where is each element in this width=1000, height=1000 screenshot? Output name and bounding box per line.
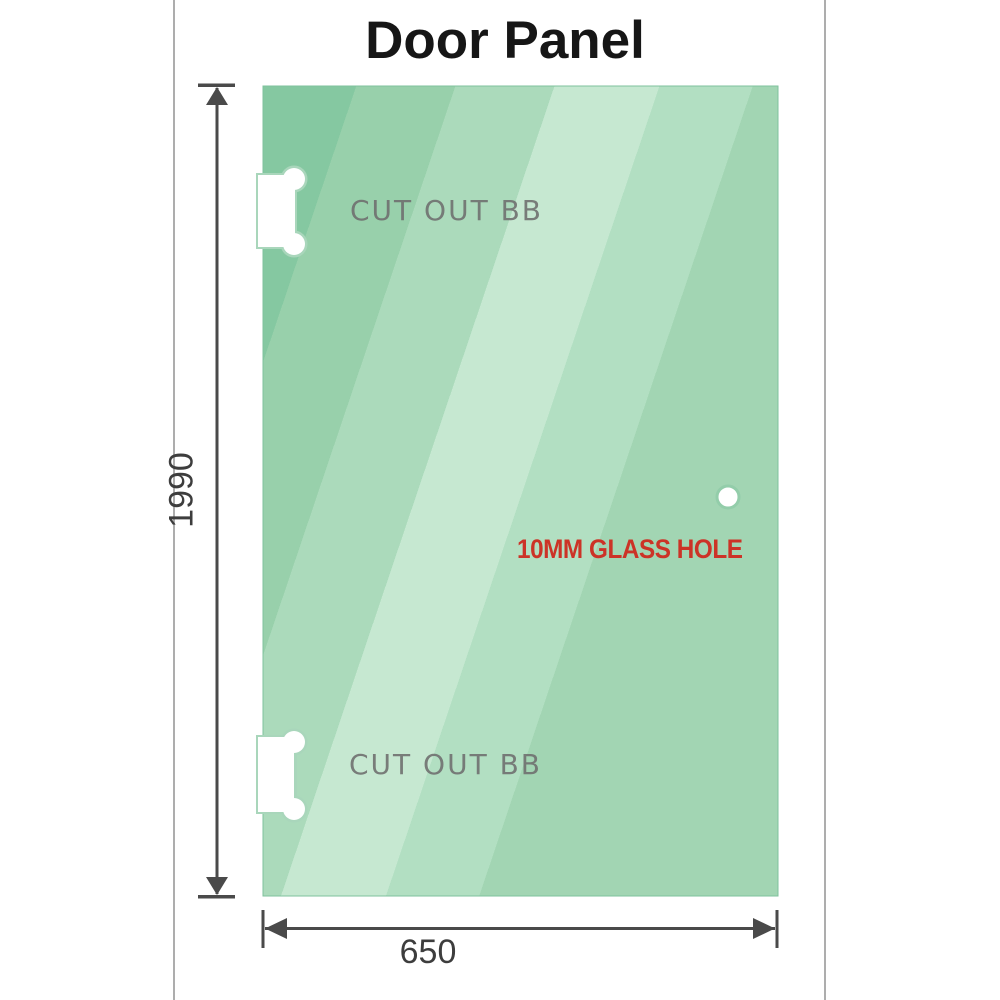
height-dim-top-cap: [198, 84, 235, 88]
width-dim-right-tick: [776, 910, 779, 948]
height-dimension-value: 1990: [163, 452, 202, 528]
width-dim-line: [265, 927, 775, 930]
door-panel-diagram: [0, 0, 1000, 1000]
width-dim-arrow-left: [265, 918, 287, 939]
height-dim-line: [216, 88, 219, 894]
height-dim-arrow-down: [206, 877, 228, 895]
height-dim-arrow-up: [206, 87, 228, 105]
height-dimension: [198, 84, 235, 899]
cutout-bottom-label: CUT OUT BB: [349, 748, 542, 781]
width-dim-left-tick: [262, 910, 265, 948]
width-dimension-value: 650: [400, 933, 457, 972]
height-dim-bottom-cap: [198, 895, 235, 899]
drawing-canvas: Door Panel: [0, 0, 1000, 1000]
width-dimension: [262, 910, 779, 948]
glass-hole: [717, 486, 739, 508]
cutout-top-label: CUT OUT BB: [350, 194, 543, 227]
glass-hole-label: 10MM GLASS HOLE: [517, 534, 742, 565]
width-dim-arrow-right: [753, 918, 775, 939]
